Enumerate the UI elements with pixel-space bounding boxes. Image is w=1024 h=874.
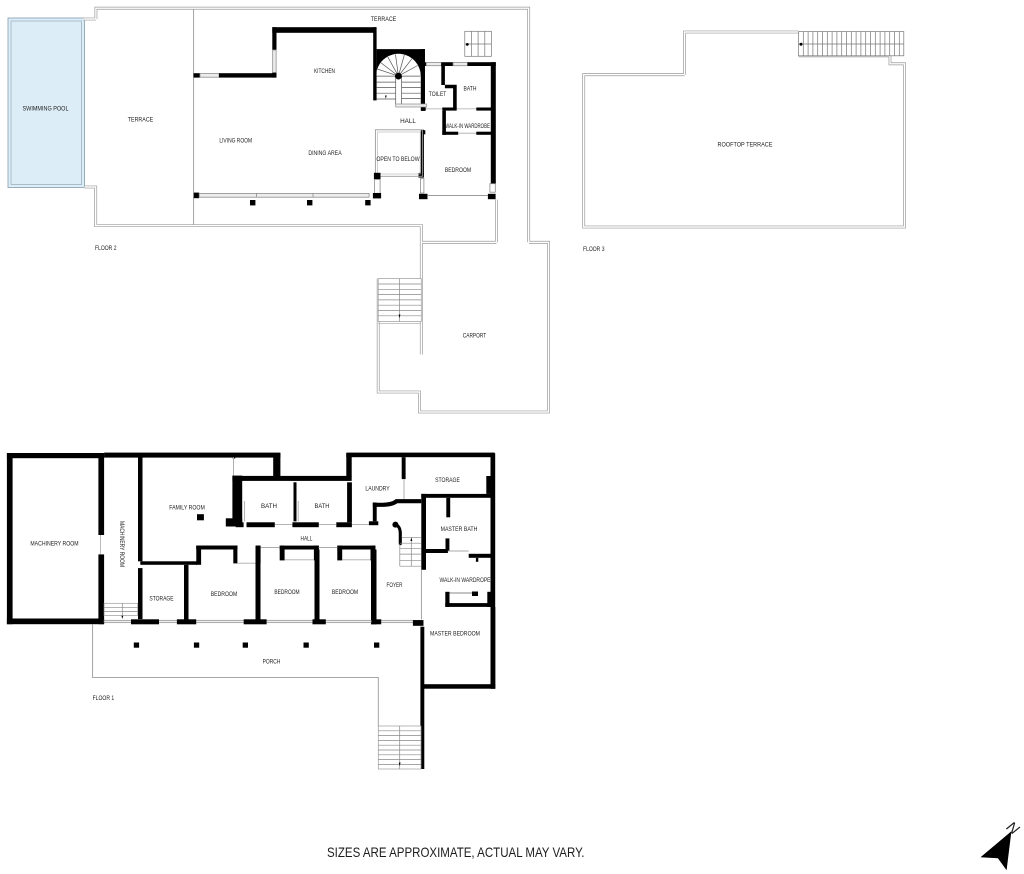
svg-text:WALK-IN WARDROPE: WALK-IN WARDROPE — [440, 577, 491, 584]
svg-text:BEDROOM: BEDROOM — [445, 167, 471, 174]
svg-text:STORAGE: STORAGE — [149, 595, 173, 602]
svg-text:MACHINERY ROOM: MACHINERY ROOM — [118, 521, 125, 567]
svg-text:STORAGE: STORAGE — [435, 477, 460, 484]
svg-text:LIVING ROOM: LIVING ROOM — [219, 138, 252, 145]
svg-text:DINING AREA: DINING AREA — [308, 150, 342, 157]
svg-text:FAMILY ROOM: FAMILY ROOM — [169, 504, 205, 511]
svg-text:MACHINERY ROOM: MACHINERY ROOM — [30, 541, 78, 548]
svg-text:SWIMMING POOL: SWIMMING POOL — [23, 106, 69, 113]
svg-text:ROOFTOP TERRACE: ROOFTOP TERRACE — [718, 142, 773, 149]
svg-text:MASTER BATH: MASTER BATH — [441, 526, 478, 533]
svg-text:FLOOR 2: FLOOR 2 — [95, 245, 117, 252]
svg-text:OPEN TO BELOW: OPEN TO BELOW — [376, 156, 420, 163]
svg-text:BATH: BATH — [464, 85, 477, 92]
svg-text:HALL: HALL — [400, 118, 416, 125]
svg-text:BEDROOM: BEDROOM — [332, 589, 358, 596]
svg-text:FLOOR 3: FLOOR 3 — [583, 246, 605, 253]
svg-text:WALK-IN WARDROBE: WALK-IN WARDROBE — [445, 123, 490, 130]
svg-text:CARPORT: CARPORT — [463, 333, 486, 340]
svg-text:LAUNDRY: LAUNDRY — [365, 485, 390, 492]
svg-text:FLOOR 1: FLOOR 1 — [93, 695, 115, 702]
svg-text:TERRACE: TERRACE — [371, 16, 397, 23]
svg-text:PORCH: PORCH — [263, 659, 281, 666]
svg-text:TOILET: TOILET — [429, 91, 447, 98]
svg-text:BEDROOM: BEDROOM — [211, 591, 238, 598]
svg-text:BEDROOM: BEDROOM — [274, 589, 299, 596]
svg-text:MASTER BEDROOM: MASTER BEDROOM — [430, 631, 480, 638]
svg-text:TERRACE: TERRACE — [128, 117, 154, 124]
svg-text:SIZES ARE APPROXIMATE, ACTUAL: SIZES ARE APPROXIMATE, ACTUAL MAY VARY. — [327, 844, 585, 860]
svg-text:BATH: BATH — [315, 503, 330, 510]
svg-text:KITCHEN: KITCHEN — [314, 68, 335, 75]
svg-text:FOYER: FOYER — [387, 582, 403, 589]
svg-text:HALL: HALL — [301, 536, 313, 543]
svg-text:BATH: BATH — [261, 503, 277, 510]
